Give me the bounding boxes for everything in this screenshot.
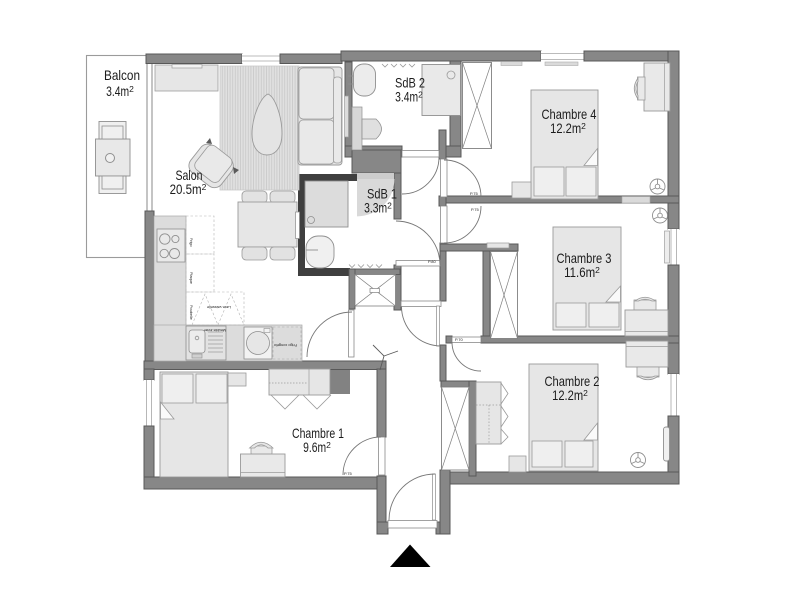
svg-text:Frigo congélo: Frigo congélo bbox=[274, 343, 297, 347]
svg-text:Plaque: Plaque bbox=[189, 272, 193, 284]
svg-text:Salon: Salon bbox=[176, 168, 203, 183]
svg-text:P.80: P.80 bbox=[428, 259, 436, 264]
svg-text:SdB 2: SdB 2 bbox=[395, 76, 425, 91]
svg-text:Balcon: Balcon bbox=[104, 68, 140, 83]
svg-text:Chambre 2: Chambre 2 bbox=[545, 374, 600, 389]
svg-text:P.75: P.75 bbox=[470, 191, 478, 196]
svg-text:SdB 1: SdB 1 bbox=[367, 187, 397, 202]
svg-text:P.75: P.75 bbox=[471, 207, 479, 212]
svg-text:Poubelle: Poubelle bbox=[189, 305, 193, 320]
svg-text:12.2m2: 12.2m2 bbox=[552, 388, 588, 403]
svg-text:12.2m2: 12.2m2 bbox=[550, 121, 586, 136]
svg-text:11.6m2: 11.6m2 bbox=[564, 265, 600, 280]
svg-text:Chambre 1: Chambre 1 bbox=[292, 426, 344, 441]
svg-text:Frigo: Frigo bbox=[189, 238, 193, 247]
svg-text:Chambre 3: Chambre 3 bbox=[557, 251, 612, 266]
svg-text:Chambre 4: Chambre 4 bbox=[542, 107, 597, 122]
svg-text:Meuble-évier: Meuble-évier bbox=[203, 328, 226, 332]
svg-text:Lave-vaisselle: Lave-vaisselle bbox=[207, 305, 231, 309]
svg-text:P.75: P.75 bbox=[344, 471, 352, 476]
svg-text:20.5m2: 20.5m2 bbox=[170, 182, 207, 197]
svg-text:P.70: P.70 bbox=[455, 337, 463, 342]
